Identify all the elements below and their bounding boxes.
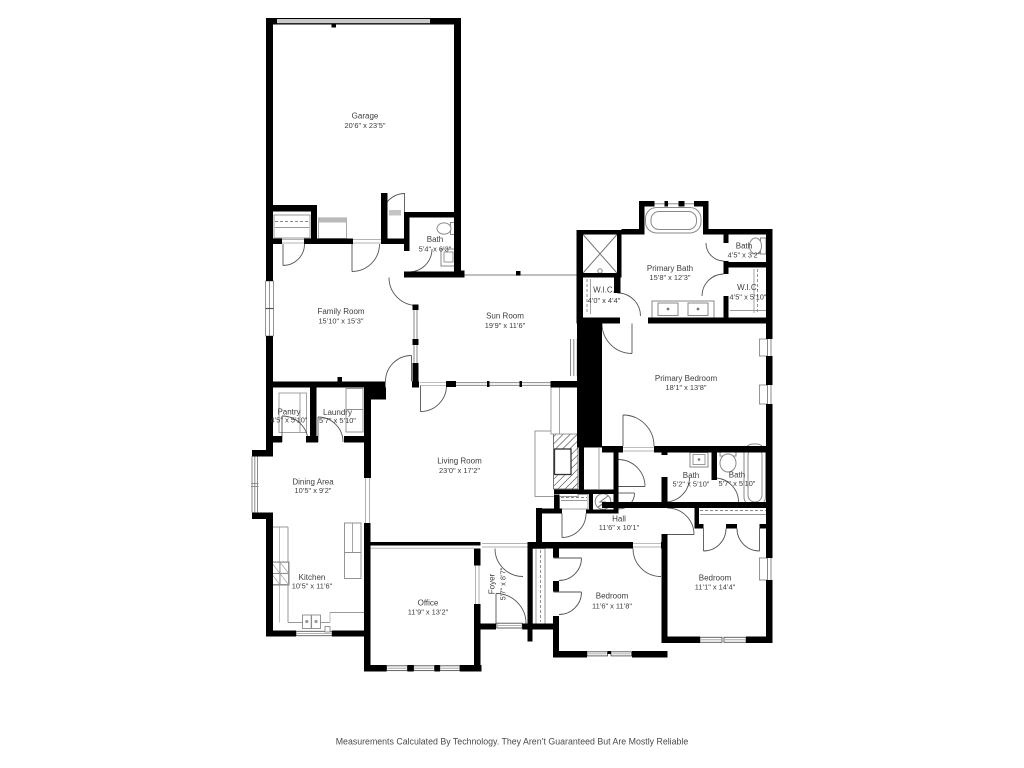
svg-text:Bath: Bath <box>427 235 443 244</box>
svg-text:Family Room: Family Room <box>317 307 364 316</box>
svg-text:Office: Office <box>418 599 439 608</box>
svg-text:Primary Bedroom: Primary Bedroom <box>655 374 718 383</box>
svg-text:5’4" x 6’3": 5’4" x 6’3" <box>419 245 452 254</box>
svg-text:19’9" x 11’6": 19’9" x 11’6" <box>485 321 526 330</box>
svg-text:15’10" x 15’3": 15’10" x 15’3" <box>318 317 363 326</box>
svg-text:10’5" x 9’2": 10’5" x 9’2" <box>295 486 332 495</box>
svg-text:10’5" x 11’6": 10’5" x 11’6" <box>292 582 333 591</box>
svg-text:Measurements Calculated By Tec: Measurements Calculated By Technology. T… <box>336 737 689 747</box>
svg-text:Bath: Bath <box>736 242 752 251</box>
svg-text:Primary Bath: Primary Bath <box>647 264 693 273</box>
svg-text:5’2" x 5’10": 5’2" x 5’10" <box>673 480 710 489</box>
svg-text:4’5" x 3’2": 4’5" x 3’2" <box>728 251 761 260</box>
svg-text:11’6" x 10’1": 11’6" x 10’1" <box>599 523 640 532</box>
svg-text:W.I.C.: W.I.C. <box>737 283 759 292</box>
svg-text:23’0" x 17’2": 23’0" x 17’2" <box>439 466 480 475</box>
svg-text:4’0" x 4’4": 4’0" x 4’4" <box>588 296 621 305</box>
svg-text:Sun Room: Sun Room <box>486 312 524 321</box>
svg-text:Bedroom: Bedroom <box>699 574 732 583</box>
svg-text:4’5" x 5’10": 4’5" x 5’10" <box>271 416 308 425</box>
svg-text:15’8" x 12’3": 15’8" x 12’3" <box>650 273 691 282</box>
svg-text:5’7" x 8’7": 5’7" x 8’7" <box>499 567 508 600</box>
svg-text:5’7" x 5’10": 5’7" x 5’10" <box>319 416 356 425</box>
svg-text:Garage: Garage <box>352 112 379 121</box>
svg-text:20’6" x 23’5": 20’6" x 23’5" <box>345 121 386 130</box>
svg-text:11’6" x 11’8": 11’6" x 11’8" <box>592 602 632 611</box>
svg-text:11’1" x 14’4": 11’1" x 14’4" <box>695 583 736 592</box>
svg-text:Foyer: Foyer <box>488 573 497 594</box>
svg-text:W.I.C.: W.I.C. <box>593 286 615 295</box>
svg-text:Bedroom: Bedroom <box>596 592 629 601</box>
svg-text:4’5" x 5’10": 4’5" x 5’10" <box>730 293 767 302</box>
svg-text:5’7" x 5’10": 5’7" x 5’10" <box>719 479 756 488</box>
svg-text:11’9" x 13’2": 11’9" x 13’2" <box>408 608 449 617</box>
svg-text:Living Room: Living Room <box>437 457 482 466</box>
svg-text:18’1" x 13’8": 18’1" x 13’8" <box>666 383 707 392</box>
